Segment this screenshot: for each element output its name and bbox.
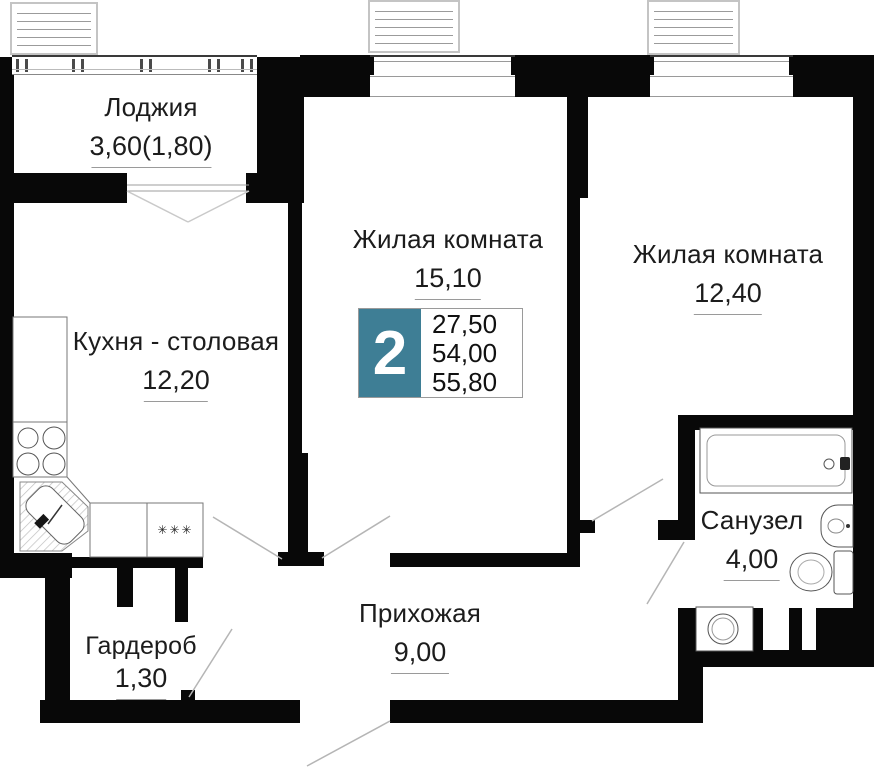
ac-louver-icon <box>647 0 740 55</box>
apartment-badge: 2 27,50 54,00 55,80 <box>358 308 523 398</box>
stove-icon <box>13 422 67 477</box>
room-name: Санузел <box>701 505 804 536</box>
badge-area-usable: 54,00 <box>432 339 522 368</box>
hallway-passage-line <box>322 516 390 558</box>
wall <box>288 453 308 554</box>
wall <box>789 608 802 651</box>
room-name: Жилая комната <box>633 239 823 270</box>
wall <box>567 97 588 198</box>
room-label-living1: Жилая комната 15,10 <box>353 224 543 300</box>
wall <box>678 415 874 430</box>
wall <box>678 418 695 540</box>
wall <box>515 55 650 97</box>
wall <box>853 97 874 667</box>
wall <box>0 173 14 578</box>
room-area: 15,10 <box>353 263 543 294</box>
badge-room-count: 2 <box>359 309 421 397</box>
room-area: 4,00 <box>701 544 804 575</box>
room-area: 3,60(1,80) <box>89 131 212 162</box>
room-label-hallway: Прихожая 9,00 <box>359 598 481 674</box>
area-underline <box>91 167 211 168</box>
wall <box>0 173 127 203</box>
kitchen-sink-icon <box>20 482 88 551</box>
badge-area-living: 27,50 <box>432 310 522 339</box>
wall <box>658 520 678 540</box>
area-underline <box>724 580 780 581</box>
glazing-mullion <box>208 59 220 72</box>
wall <box>793 55 874 97</box>
kitchen-cabinet-marking: ✳✳✳ <box>149 506 202 554</box>
area-underline <box>144 401 208 402</box>
wall <box>687 650 874 667</box>
wall <box>0 557 203 568</box>
area-underline <box>415 299 481 300</box>
ac-louver-icon <box>10 2 98 55</box>
room-label-kitchen: Кухня - столовая 12,20 <box>73 326 279 402</box>
room-label-living2: Жилая комната 12,40 <box>633 239 823 315</box>
wall <box>288 203 302 453</box>
wall <box>246 173 258 203</box>
room-name: Жилая комната <box>353 224 543 255</box>
room-label-wardrobe: Гардероб 1,30 <box>85 632 197 700</box>
living1-window <box>370 55 515 97</box>
glazing-mullion <box>140 59 152 72</box>
area-underline <box>391 673 449 674</box>
area-underline <box>694 314 762 315</box>
loggia-glazing-window <box>12 55 257 75</box>
area-underline <box>116 699 166 700</box>
wall <box>0 57 14 178</box>
glazing-mullion <box>16 59 28 72</box>
room-area: 12,40 <box>633 278 823 309</box>
room-label-loggia: Лоджия 3,60(1,80) <box>89 92 212 168</box>
glazing-mullion <box>241 59 253 72</box>
wall <box>390 553 580 567</box>
wall <box>175 568 188 622</box>
bathtub-icon <box>700 428 852 493</box>
room-area: 12,20 <box>73 365 279 396</box>
room-label-bathroom: Санузел 4,00 <box>701 505 804 581</box>
room-area: 1,30 <box>85 663 197 694</box>
glazing-mullion <box>72 59 84 72</box>
washbasin-icon <box>821 505 853 547</box>
wall <box>390 700 703 723</box>
washing-machine-icon <box>696 607 753 651</box>
wall <box>40 700 300 723</box>
room-name: Прихожая <box>359 598 481 629</box>
wall <box>278 552 324 566</box>
wall <box>117 568 133 607</box>
room-name: Гардероб <box>85 632 197 661</box>
wall <box>300 55 370 97</box>
wall <box>580 520 595 533</box>
living2-door-swing <box>592 479 663 521</box>
wall <box>257 57 304 203</box>
ac-louver-icon <box>368 0 460 53</box>
badge-area-list: 27,50 54,00 55,80 <box>421 309 522 397</box>
floor-plan: Лоджия 3,60(1,80) Жилая комната 15,10 Жи… <box>0 0 874 768</box>
wall <box>816 608 853 651</box>
living2-window <box>650 55 793 97</box>
room-name: Лоджия <box>89 92 212 123</box>
room-area: 9,00 <box>359 637 481 668</box>
wall <box>567 198 580 565</box>
room-name: Кухня - столовая <box>73 326 279 357</box>
entrance-door-swing <box>307 721 390 766</box>
bathroom-door-swing <box>647 542 684 604</box>
wall <box>752 608 763 651</box>
loggia-door-swing <box>127 185 249 222</box>
kitchen-passage-line <box>213 517 282 559</box>
badge-area-total: 55,80 <box>432 368 522 397</box>
